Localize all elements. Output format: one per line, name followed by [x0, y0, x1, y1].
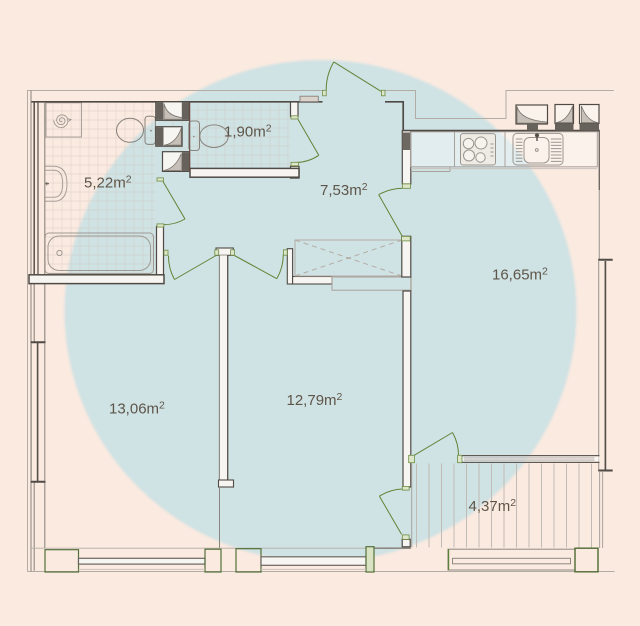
svg-text:5,22m2: 5,22m2 — [84, 174, 132, 192]
svg-text:13,06m2: 13,06m2 — [109, 400, 165, 418]
svg-text:1,90m2: 1,90m2 — [224, 123, 272, 141]
svg-text:12,79m2: 12,79m2 — [287, 391, 343, 409]
svg-text:7,53m2: 7,53m2 — [320, 181, 368, 199]
svg-text:16,65m2: 16,65m2 — [492, 266, 548, 284]
svg-text:4,37m2: 4,37m2 — [469, 497, 517, 515]
